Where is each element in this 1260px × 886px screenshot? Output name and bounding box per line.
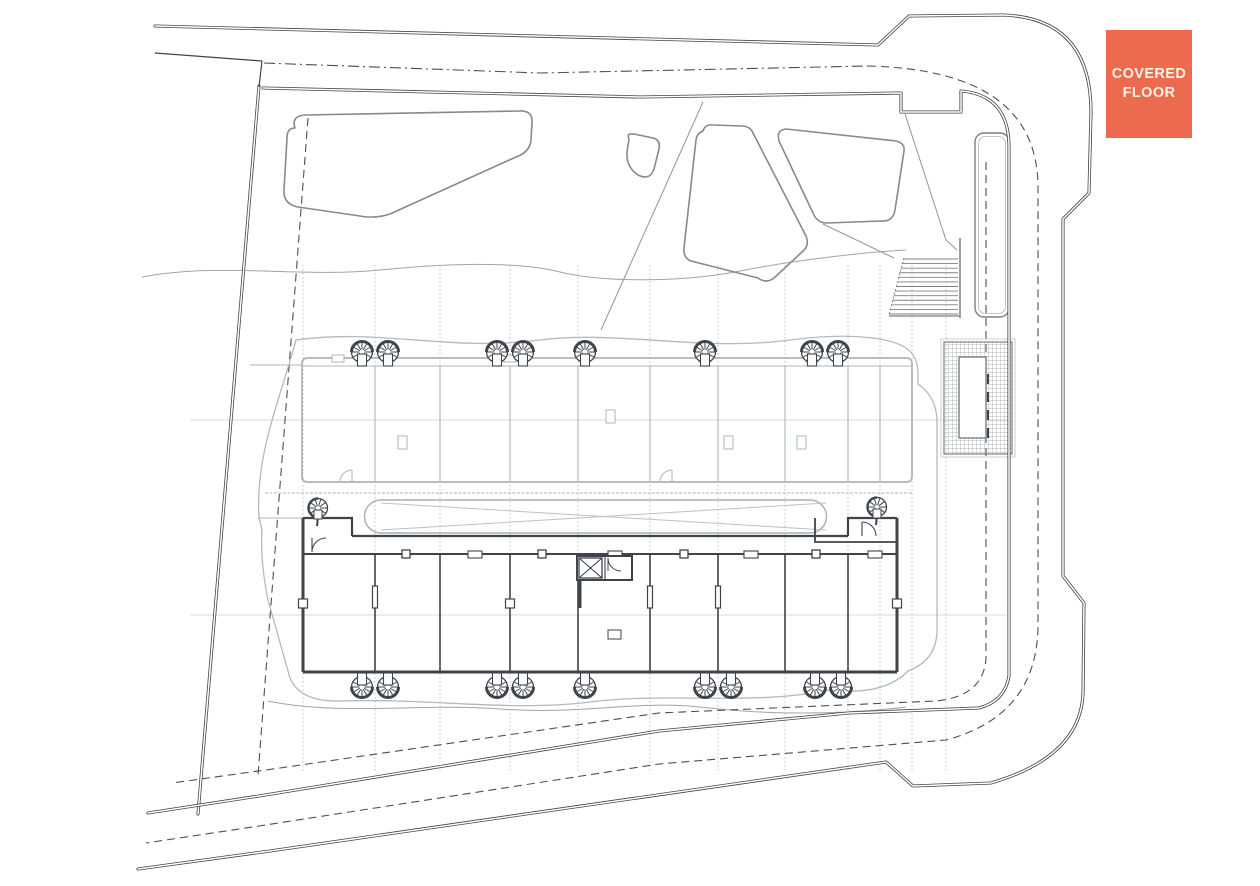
- landscape-areas: [284, 102, 957, 330]
- upper-fixtures: [398, 410, 806, 449]
- fan-symbol: [828, 342, 849, 367]
- terrace-outline: [259, 336, 937, 705]
- door-arc: [312, 538, 326, 552]
- lower-floor: [299, 518, 902, 672]
- planting-bed-right: [778, 129, 904, 223]
- planting-bed-small: [627, 134, 659, 177]
- fan-symbol: [695, 342, 716, 367]
- fan-symbol: [352, 673, 373, 698]
- fan-symbol: [721, 673, 742, 698]
- upper-partitions: [375, 366, 880, 482]
- plan-symbols: [309, 342, 887, 698]
- fan-symbol: [831, 673, 852, 698]
- fan-symbol: [575, 673, 596, 698]
- spiral-stair-symbol: [309, 499, 328, 527]
- upper-door-arc: [660, 470, 672, 482]
- stair-treads: [889, 259, 958, 314]
- ramp-oval: [365, 500, 827, 533]
- planting-bed-left: [284, 111, 532, 217]
- badge-line2: FLOOR: [1123, 84, 1176, 103]
- planting-bed-middle: [684, 125, 807, 281]
- setback-top: [264, 63, 868, 73]
- fan-symbol: [802, 342, 823, 367]
- spiral-stair-symbol: [868, 498, 887, 526]
- upper-floor: [250, 355, 912, 518]
- fan-symbol: [695, 673, 716, 698]
- fan-symbol: [378, 342, 399, 367]
- planter: [975, 133, 1009, 317]
- fan-symbol: [378, 673, 399, 698]
- fan-symbol: [513, 673, 534, 698]
- site-plan-drawing: [0, 0, 1260, 886]
- road-edge: [155, 53, 262, 87]
- floor-plan-canvas: COVERED FLOOR: [0, 0, 1260, 886]
- fan-symbol: [805, 673, 826, 698]
- setback-right-bottom: [146, 66, 1038, 843]
- door-arc: [862, 522, 876, 536]
- setback-lines: [146, 63, 1038, 843]
- elevator-core: [577, 556, 632, 608]
- covered-floor-badge: COVERED FLOOR: [1106, 30, 1192, 138]
- exterior-stairs: [889, 133, 1009, 318]
- upper-door-arc: [340, 470, 352, 482]
- fan-symbol: [487, 673, 508, 698]
- pool-basin: [959, 357, 986, 438]
- fan-symbol: [352, 342, 373, 367]
- pool-feature: [941, 339, 1015, 457]
- badge-line1: COVERED: [1112, 65, 1187, 84]
